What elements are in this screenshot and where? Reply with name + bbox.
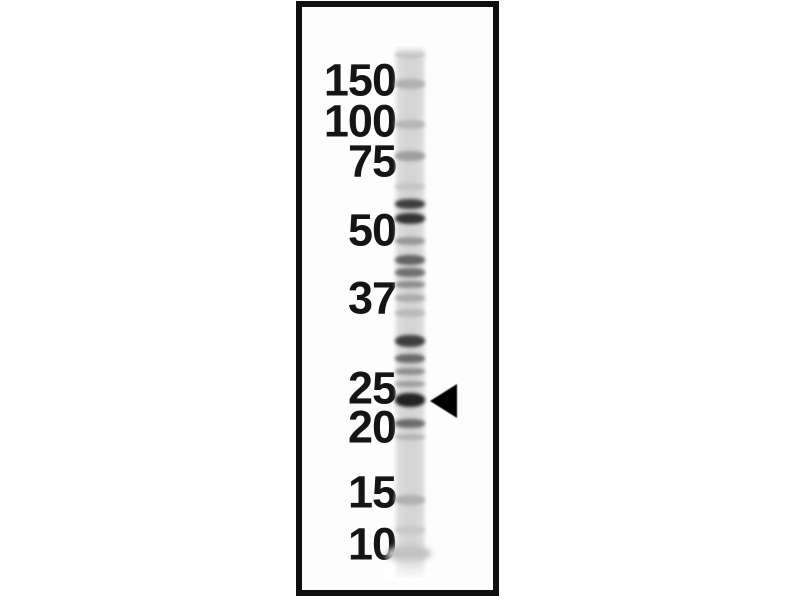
marker-label-20: 20 <box>296 405 396 450</box>
protein-band <box>395 309 425 317</box>
protein-band <box>395 526 425 534</box>
marker-label-75: 75 <box>296 139 396 184</box>
lane-bottom-fade <box>385 555 433 581</box>
marker-label-50: 50 <box>296 208 396 253</box>
protein-band <box>395 79 425 89</box>
protein-band <box>395 237 425 245</box>
protein-band <box>395 354 425 363</box>
protein-band <box>395 255 425 265</box>
lane-top-fade <box>389 44 431 56</box>
protein-band <box>395 151 425 161</box>
protein-band <box>395 381 425 387</box>
protein-band <box>395 335 425 347</box>
marker-label-37: 37 <box>296 276 396 321</box>
protein-band <box>395 393 425 407</box>
protein-band <box>395 213 425 224</box>
protein-band <box>395 294 425 302</box>
protein-band <box>395 434 425 440</box>
protein-band <box>395 495 425 505</box>
marker-label-10: 10 <box>296 522 396 567</box>
target-band-arrow-icon <box>430 384 457 418</box>
marker-label-15: 15 <box>296 470 396 515</box>
protein-band <box>395 199 425 209</box>
protein-band <box>395 419 425 428</box>
protein-band <box>395 281 425 288</box>
blot-figure: 15010075503725201510 <box>0 0 800 600</box>
protein-band <box>395 268 425 277</box>
gel-lane <box>393 46 427 578</box>
protein-band <box>395 368 425 375</box>
protein-band <box>395 183 425 190</box>
protein-band <box>395 120 425 129</box>
